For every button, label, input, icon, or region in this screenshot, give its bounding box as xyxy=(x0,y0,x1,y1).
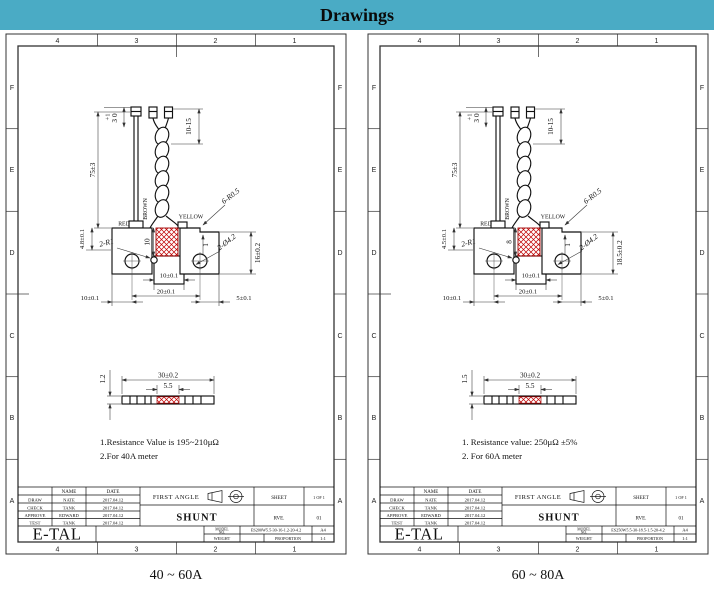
dim-strip-length: 30±0.2 xyxy=(158,372,179,380)
dim-tab-width: 10±0.1 xyxy=(160,273,178,280)
dim-strip-range: 10-15 xyxy=(185,118,193,135)
tb-row-name: EDWARD xyxy=(421,513,441,518)
dim-wire-length: 75±3 xyxy=(89,162,97,177)
zone-col: 4 xyxy=(56,547,60,554)
zone-row: E xyxy=(700,167,705,174)
dim-strip-thickness: 1.5 xyxy=(461,374,469,383)
note-line: 1. Resistance value: 250μΩ ±5% xyxy=(462,437,578,447)
dim-step: 1 xyxy=(564,243,572,247)
manganin-hatch xyxy=(518,228,540,256)
zone-row: F xyxy=(700,85,704,92)
zone-col: 1 xyxy=(293,547,297,554)
tb-row-date: 2017.04.12 xyxy=(465,505,486,510)
dim-left-offset: 10±0.1 xyxy=(443,295,461,302)
tb-rev-value: 01 xyxy=(317,517,323,522)
zone-row: A xyxy=(10,498,15,505)
tb-date-header: DATE xyxy=(469,490,482,495)
tb-drawing-title: SHUNT xyxy=(538,513,579,524)
zone-col: 1 xyxy=(293,38,297,45)
tb-rev-value: 01 xyxy=(679,517,685,522)
dim-right-offset: 5±0.1 xyxy=(236,295,251,302)
zone-col: 3 xyxy=(497,38,501,45)
company-logo: E-TAL xyxy=(395,525,444,544)
wire-label-brown: BROWN xyxy=(143,197,149,219)
wire-label-yellow: YELLOW xyxy=(541,215,566,221)
zone-row: B xyxy=(10,415,15,422)
shunt-bottom-view: 30±0.2 5.5 1.5 xyxy=(461,370,576,420)
dim-hole-span: 20±0.1 xyxy=(157,289,175,296)
zone-row: E xyxy=(338,167,343,174)
page: Drawings 4 3 2 1 4 3 2 1 F E D C xyxy=(0,0,714,596)
zone-row: F xyxy=(372,85,376,92)
tb-row-date: 2017.04.12 xyxy=(465,520,486,525)
dim-left-offset: 10±0.1 xyxy=(81,295,99,302)
wire-label-yellow: YELLOW xyxy=(179,215,204,221)
zone-row: A xyxy=(338,498,343,505)
dim-strip-range: 10-15 xyxy=(547,118,555,135)
dim-left-height: 4.8±0.1 xyxy=(79,229,86,249)
zone-row: B xyxy=(700,415,705,422)
zone-row: B xyxy=(338,415,343,422)
zone-col: 3 xyxy=(135,38,139,45)
tb-row-label: CHECK xyxy=(27,505,43,510)
tb-weight-label: WEIGHT xyxy=(576,536,593,541)
manganin-hatch xyxy=(156,228,178,256)
dim-corner-radius: 6-R0.5 xyxy=(582,186,604,206)
zone-row: F xyxy=(338,85,342,92)
dim-strip-center: 5.5 xyxy=(164,382,173,390)
tb-row-date: 2017.04.12 xyxy=(103,497,124,502)
tb-weight-label: WEIGHT xyxy=(214,536,231,541)
shunt-main-view: RED BROWN YELLOW xyxy=(112,107,219,284)
tb-paper-size: A4 xyxy=(682,528,688,533)
title-block: NAME DATE DRAW NATE 2017.04.12 CHECK TAN… xyxy=(380,487,696,544)
zone-row: C xyxy=(371,333,376,340)
tb-row-name: TANK xyxy=(63,505,76,510)
tb-row-name: NATE xyxy=(425,497,437,502)
zone-col: 4 xyxy=(418,547,422,554)
tb-name-header: NAME xyxy=(62,490,77,495)
zone-row: D xyxy=(9,250,14,257)
tb-row-date: 2017.04.12 xyxy=(103,513,124,518)
zone-row: A xyxy=(700,498,705,505)
tb-sheet-label: SHEET xyxy=(271,496,287,501)
zone-row: D xyxy=(699,250,704,257)
tb-sheet-label: SHEET xyxy=(633,496,649,501)
dim-strip-thickness: 1.2 xyxy=(99,374,107,383)
tb-row-label: DRAW xyxy=(390,497,404,502)
tb-proportion-label: PROPORTION xyxy=(637,536,663,541)
dim-body-height: 18.5±0.2 xyxy=(616,240,624,266)
dim-body-height: 16±0.2 xyxy=(254,243,262,264)
dim-right-offset: 5±0.1 xyxy=(598,295,613,302)
title-block: NAME DATE DRAW NATE 2017.04.12 CHECK TAN… xyxy=(18,487,334,544)
dim-strip-30: 30 xyxy=(111,111,119,122)
wire-label-red: RED xyxy=(118,222,130,228)
zone-col: 2 xyxy=(214,547,218,554)
zone-row: B xyxy=(372,415,377,422)
wire-label-brown: BROWN xyxy=(505,197,511,219)
notes: 1. Resistance value: 250μΩ ±5% 2. For 60… xyxy=(462,437,578,461)
dim-hatch-height: 10 xyxy=(144,238,152,246)
dim-hatch-height: 8 xyxy=(506,240,514,244)
tb-name-header: NAME xyxy=(424,490,439,495)
shunt-main-view: RED BROWN YELLOW xyxy=(474,107,581,284)
dim-corner-radius: 6-R0.5 xyxy=(220,186,242,206)
zone-row: C xyxy=(337,333,342,340)
zone-col: 3 xyxy=(497,547,501,554)
dim-strip-length: 30±0.2 xyxy=(520,372,541,380)
zone-col: 2 xyxy=(214,38,218,45)
note-line: 1.Resistance Value is 195~210μΩ xyxy=(100,437,219,447)
zone-row: D xyxy=(371,250,376,257)
page-header: Drawings xyxy=(0,0,714,30)
tb-sheet-value: 1 OF 1 xyxy=(675,495,687,500)
tb-rev-label: RVE. xyxy=(636,517,647,522)
tb-row-date: 2017.04.12 xyxy=(465,513,486,518)
zone-row: E xyxy=(372,167,377,174)
tb-rev-label: RVE. xyxy=(274,517,285,522)
drawing-sheets-row: 4 3 2 1 4 3 2 1 F E D C B A F E D C B A xyxy=(0,32,714,584)
sheet-caption: 60 ~ 80A xyxy=(366,568,710,584)
tb-proportion-value: 1:1 xyxy=(682,536,689,541)
zone-col: 2 xyxy=(576,547,580,554)
tb-row-date: 2017.04.12 xyxy=(103,520,124,525)
drawing-sheet: 4 3 2 1 4 3 2 1 F E D C B A F E D C B A xyxy=(366,32,710,584)
zone-col: 1 xyxy=(655,547,659,554)
tb-paper-size: A4 xyxy=(320,528,326,533)
zone-col: 2 xyxy=(576,38,580,45)
zone-col: 1 xyxy=(655,38,659,45)
sheet-caption: 40 ~ 60A xyxy=(4,568,348,584)
wire-label-red: RED xyxy=(480,222,492,228)
dim-strip-center: 5.5 xyxy=(526,382,535,390)
manganin-hatch-bottom xyxy=(157,397,179,403)
tb-row-date: 2017.04.12 xyxy=(103,505,124,510)
tb-model-number: ES250W5.5-30-18.5-1.5-20-4.2 xyxy=(611,528,665,533)
zone-row: C xyxy=(9,333,14,340)
page-title: Drawings xyxy=(320,5,394,26)
tb-first-angle: FIRST ANGLE xyxy=(515,494,561,501)
company-logo: E-TAL xyxy=(33,525,82,544)
dimensions: 75±3 +1 30 10-15 4.8±0.1 2-R1 10 1 xyxy=(79,108,262,307)
manganin-hatch-bottom xyxy=(519,397,541,403)
sheet-frame xyxy=(368,34,708,554)
zone-row: A xyxy=(372,498,377,505)
tb-proportion-label: PROPORTION xyxy=(275,536,301,541)
note-line: 2. For 60A meter xyxy=(462,451,522,461)
dim-strip-30: 30 xyxy=(473,111,481,122)
zone-row: C xyxy=(699,333,704,340)
first-angle-symbol xyxy=(208,491,244,503)
notes: 1.Resistance Value is 195~210μΩ 2.For 40… xyxy=(100,437,219,461)
dim-hole-span: 20±0.1 xyxy=(519,289,537,296)
tb-model-number: ES200W5.5-30-16-1.2-20-4.2 xyxy=(251,528,301,533)
zone-row: E xyxy=(10,167,15,174)
tb-date-header: DATE xyxy=(107,490,120,495)
tb-row-label: DRAW xyxy=(28,497,42,502)
tb-row-name: TANK xyxy=(425,505,438,510)
first-angle-symbol xyxy=(570,491,606,503)
tb-sheet-value: 1 OF 1 xyxy=(313,495,325,500)
zone-col: 3 xyxy=(135,547,139,554)
tb-row-label: APPROVE xyxy=(25,513,46,518)
zone-row: F xyxy=(10,85,14,92)
tb-proportion-value: 1:1 xyxy=(320,536,327,541)
shunt-bottom-view: 30±0.2 5.5 1.2 xyxy=(99,370,214,420)
dim-tab-width: 10±0.1 xyxy=(522,273,540,280)
note-line: 2.For 40A meter xyxy=(100,451,158,461)
sheet-frame xyxy=(6,34,346,554)
tb-row-label: APPROVE xyxy=(387,513,408,518)
tb-drawing-title: SHUNT xyxy=(176,513,217,524)
dimensions: 75±3 +1 30 10-15 4.5±0.1 2-R1 8 1 xyxy=(441,108,624,307)
tb-model-label: NO. xyxy=(219,531,225,535)
dim-step: 1 xyxy=(202,243,210,247)
tb-row-name: EDWARD xyxy=(59,513,79,518)
tb-first-angle: FIRST ANGLE xyxy=(153,494,199,501)
tb-row-name: NATE xyxy=(63,497,75,502)
drawing-sheet-svg: 4 3 2 1 4 3 2 1 F E D C B A F E D C B A xyxy=(4,32,348,556)
zone-col: 4 xyxy=(418,38,422,45)
dim-left-height: 4.5±0.1 xyxy=(441,229,448,249)
dim-wire-length: 75±3 xyxy=(451,162,459,177)
tb-model-label: NO. xyxy=(581,531,587,535)
tb-row-date: 2017.04.12 xyxy=(465,497,486,502)
drawing-sheet: 4 3 2 1 4 3 2 1 F E D C B A F E D C B A xyxy=(4,32,348,584)
drawing-sheet-svg: 4 3 2 1 4 3 2 1 F E D C B A F E D C B A xyxy=(366,32,710,556)
zone-col: 4 xyxy=(56,38,60,45)
zone-row: D xyxy=(337,250,342,257)
tb-row-label: CHECK xyxy=(389,505,405,510)
